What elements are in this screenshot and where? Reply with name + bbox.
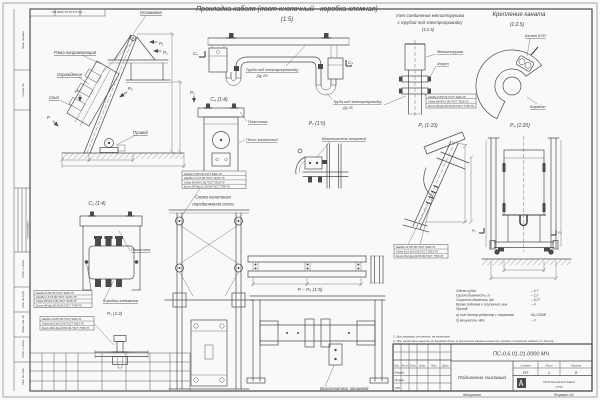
- side-label-rama: Рама направляющая: [54, 50, 97, 55]
- stamp-sprav: Справ. №: [21, 84, 25, 97]
- ground-hatch-p3: [482, 259, 571, 265]
- view-p2-bolt: [95, 336, 148, 369]
- callout-m12-line3: Болт М12-6g×40.58.06 ГОСТ 7798-70: [396, 254, 444, 258]
- stamp-podp-data-2: Подп. и дата: [21, 340, 25, 358]
- callout-m5-line1: Шайба 5.65Г.06 ГОСТ 6402-70: [184, 172, 222, 176]
- section-mark-p3: Р₃: [128, 86, 133, 91]
- detail-hose-connection: Узел соединения металлорукава с трубой п…: [396, 13, 476, 116]
- view-bottom-axle: Выключатель концевой: [247, 296, 388, 391]
- callout-m12-line2: Гайка М12-6Н.5.06 ГОСТ 5915-70: [396, 250, 438, 254]
- notes: 1. Все размеры уточнять на монтаже. 2. П…: [392, 335, 554, 344]
- row-razrab: Разраб.: [395, 371, 405, 375]
- callout-m8-line3: Гайка М8-6Н.5.06 ГОСТ 5915-70: [36, 299, 77, 303]
- spec-label-3: Время подъема и опускания, мин: [456, 303, 508, 307]
- sheets-value: 8: [575, 370, 578, 375]
- node-title-1: Узел соединения металлорукава: [396, 13, 465, 18]
- pipe-bend-right: [316, 85, 336, 95]
- c3-plate-label: Пластина: [131, 247, 151, 252]
- spec-value-1: – 1,0: [530, 294, 538, 298]
- callout-m5-line3: Гайка М5-6Н.5.06 ГОСТ 5915-70: [184, 180, 225, 184]
- view-rope-scheme: Шайба 5.65Г.06 ГОСТ 6402-70 Шайба С.5.37…: [165, 171, 253, 389]
- row-prover: Провер.: [395, 378, 406, 382]
- node-clamp-label: Хомут: [436, 62, 449, 66]
- hub-left: [260, 321, 278, 345]
- rope-title: Крепление каната: [493, 12, 547, 18]
- stage-header: Стадия: [520, 364, 531, 368]
- spec-label-5: а) тип Мотор-редуктор с тормозом: [456, 313, 514, 317]
- view-p3-label: Р₃ (1:20): [510, 123, 530, 129]
- col-dok: №док.: [419, 365, 426, 368]
- col-list: Лист: [409, 366, 416, 368]
- p3-section-mark-right: Р₇: [558, 231, 563, 235]
- sheet-value: 1: [548, 370, 550, 375]
- drawing-canvas: ПС-0.6.01.01.0000 МЧ Перв. примен. Справ…: [0, 0, 600, 400]
- hub-right: [357, 321, 375, 345]
- format-label: Формат А2: [554, 393, 574, 397]
- section-mark-p4: Р₄: [190, 90, 195, 95]
- node-hose-label: Металлорукав: [437, 50, 463, 54]
- spec-label-0: Объем кубля: [456, 289, 476, 293]
- section-mark-p: Р: [75, 89, 78, 94]
- view-p7-label: Р₇ (1:5): [309, 121, 326, 127]
- side-label-ograzhdenie: Ограждение: [57, 72, 83, 77]
- col-podp: Подп.: [431, 365, 437, 368]
- sheets-header: Листов: [570, 364, 581, 368]
- stage-value: РП: [523, 370, 529, 375]
- section-mark-c3: С₃: [348, 60, 353, 65]
- spec-value-2: – 0,27: [530, 298, 540, 302]
- view-side-elevation: Основание Рама направляющая Ограждение С…: [47, 10, 195, 168]
- col-koluch: Кол.уч: [402, 366, 410, 368]
- view-c4-post: С₄ (1:4) Пластина Пост кнопочный: [198, 97, 278, 172]
- company-name-2: «УГЛ»: [555, 385, 564, 389]
- p3-section-mark-left: Р₇: [472, 229, 477, 233]
- company-name-1: ООО Копейский Завод: [543, 380, 575, 384]
- callout-m10-line1: Шайба 10.65Г.06 ГОСТ 6402-70: [42, 317, 82, 321]
- view-c3-terminal-box: С₃ (1:4) Пластина Коробка клеммная Р₂ (1…: [34, 201, 151, 345]
- node-scale: (1:2.5): [422, 27, 435, 32]
- callout-m5-line2: Шайба С.5.37.06 ГОСТ 11371-78: [184, 176, 225, 180]
- drum-shaft: [503, 77, 521, 95]
- copied-label: Копировал: [463, 393, 481, 397]
- spec-value-5: КЦ 2000В: [531, 313, 547, 317]
- sheet-header: Лист: [545, 364, 554, 368]
- callout-m6-line2: Гайка М6-6Н.5.06 ГОСТ 5915-70: [428, 99, 469, 103]
- stamp-podp-data-1: Подп. и дата: [21, 260, 25, 278]
- callout-m6-line1: Шайба 6.65Г.06 ГОСТ 6402-70: [428, 95, 466, 99]
- col-data: Дата: [441, 366, 449, 368]
- c4-plate-label: Пластина: [248, 119, 268, 124]
- main-pipe-label-right: Труба под электропроводку: [333, 100, 383, 104]
- rope-cable-label: Канат 8.00: [525, 33, 546, 38]
- main-pipe-du-right: Ду 25: [342, 106, 354, 110]
- callout-m8-line1: Шайба 8.65Г.06 ГОСТ 6402-70: [36, 291, 74, 295]
- callout-m5-line4: Болт М5-6g×12.58.06 ГОСТ 7798-70: [184, 185, 230, 189]
- callout-m10-line2: Гайка М10-6Н.5.06 ГОСТ 5915-70: [42, 322, 84, 326]
- stamp-vzam-inv: Взам. инв. №: [21, 315, 25, 332]
- view-p1-label: Р₁ (1:10): [418, 123, 438, 129]
- spec-label-6: б) мощность, кВт: [456, 319, 485, 323]
- section-mark-p2: Р₂: [163, 50, 168, 55]
- tech-specs: Объем кубля – 0,7 Грузоподъемность, т – …: [456, 289, 547, 323]
- c4-post-label: Пост кнопочный: [246, 137, 278, 142]
- stamp-inv-podl: Инв. № подл.: [21, 367, 25, 385]
- title-block: ПС-0.6.01.01.0000 МЧ Подъемник скиповый …: [393, 344, 592, 391]
- view-c4-label: С₄ (1:4): [210, 97, 228, 103]
- spec-label-2: Скорость движения, м/с: [456, 298, 494, 302]
- note-2: 2. При запасовке каната на барабан болт …: [392, 339, 554, 343]
- callout-m6-line3: Болт М6-6g×16.58.06 ГОСТ 7798-70: [428, 104, 474, 108]
- node-title-2: с трубой под электропроводку: [398, 20, 464, 25]
- pipe-bend-left: [226, 78, 241, 86]
- page-title-scale: (1:5): [281, 17, 293, 23]
- detail-rope-fastening: Крепление каната (1:2.5) Канат 8.00 Бара…: [476, 12, 547, 119]
- stamp-inv-dubl: Инв. № дубл.: [21, 290, 25, 307]
- rope-clamp: [516, 55, 535, 72]
- view-c3-label: С₃ (1:4): [88, 201, 106, 207]
- stamp-perv-primen: Перв. примен.: [21, 30, 25, 49]
- side-label-osnovanie: Основание: [140, 10, 163, 15]
- view-p3-front: Р₃ (1:20) Р₇ Р₇: [472, 123, 571, 280]
- scheme-title-2: передвижения скипа: [192, 202, 234, 207]
- doc-number: ПС-0.6.01.01.0000 МЧ: [493, 352, 549, 358]
- p7-switch-label: Выключатель концевой: [322, 136, 367, 141]
- main-pipe-label: Труба под электропроводку: [246, 67, 300, 72]
- view-pp4-plan: Р – Р₄ (1:5): [248, 256, 384, 293]
- side-label-skip: Скип: [49, 95, 60, 100]
- side-label-privod: Привод: [133, 130, 148, 135]
- section-mark-c4: С₄: [193, 51, 198, 56]
- ground-hatch: [62, 153, 184, 159]
- rope-drum-label: Барабан: [530, 104, 546, 109]
- corner-doc-number: ПС-0.6.01.01.0000 МЧ: [51, 10, 83, 14]
- bottom-switch-label: Выключатель концевой: [320, 386, 369, 391]
- main-pipe-du: Ду 25: [256, 73, 268, 78]
- c3-box-label: Коробка клеммная: [103, 298, 139, 303]
- rope-scale: (1:2.5): [510, 22, 525, 28]
- sheet-header: Прокладка кабеля (пост кнопочный - короб…: [196, 5, 378, 23]
- scheme-title-1: Схема канатного: [195, 195, 232, 200]
- spec-label-4: Привод:: [456, 307, 468, 311]
- drawing-sheet: ПС-0.6.01.01.0000 МЧ Перв. примен. Справ…: [0, 0, 600, 400]
- spec-value-0: – 0,7: [530, 289, 538, 293]
- callout-m8-line4: Болт М8-6g×30.58.06 ГОСТ 7798-70: [36, 303, 82, 307]
- col-izm: Изм.: [395, 366, 400, 368]
- row-gip: ГИП: [395, 386, 402, 390]
- stamp-soglasovano: Согласовано: [26, 221, 30, 239]
- callout-m12-line1: Шайба 12.65Г.06 ГОСТ 6402-70: [396, 245, 436, 249]
- view-p1-inclined: Р₁ (1:10) Шайба 12.65Г.06 ГОСТ 6402-70 Г…: [394, 123, 473, 258]
- view-pp4-label: Р – Р₄ (1:5): [298, 287, 323, 293]
- section-mark-p1: Р₁: [159, 41, 164, 46]
- page-title: Прокладка кабеля (пост кнопочный - короб…: [196, 5, 378, 13]
- callout-m10-line3: Болт М10-6g×40.58.06 ГОСТ 7798-70: [42, 326, 90, 330]
- company-logo-icon: [517, 378, 526, 388]
- spec-value-3: – 4: [530, 303, 536, 307]
- view-p7-limit-switch: Р₇ (1:5) Выключатель концевой: [296, 121, 367, 188]
- bottom-margin: Копировал Формат А2: [463, 393, 574, 397]
- view-p2-label: Р₂ (1:2): [107, 311, 123, 316]
- spec-label-1: Грузоподъемность, т: [456, 294, 491, 298]
- section-mark-p-bottom: Р: [47, 115, 50, 120]
- note-1: 1. Все размеры уточнять на монтаже.: [393, 335, 451, 339]
- callout-m8-line2: Шайба С.8.37.06 ГОСТ 11371-78: [36, 295, 77, 299]
- doc-name: Подъемник скиповый: [458, 374, 506, 381]
- spec-value-6: – 3: [530, 319, 536, 323]
